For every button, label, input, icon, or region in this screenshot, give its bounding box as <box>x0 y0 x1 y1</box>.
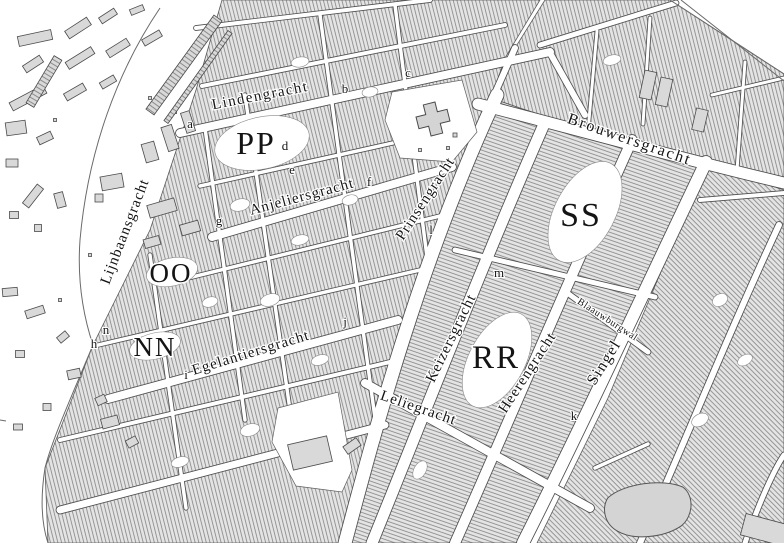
building <box>99 75 116 89</box>
building <box>99 8 118 24</box>
building <box>419 149 422 152</box>
building <box>149 97 152 100</box>
index-letter-m: m <box>494 265 504 280</box>
block-letter-nn: NN <box>134 332 177 362</box>
building <box>89 254 92 257</box>
building <box>141 141 159 163</box>
index-letter-i: i <box>184 367 188 382</box>
building <box>161 124 179 151</box>
building <box>22 184 43 208</box>
building <box>453 133 457 137</box>
building <box>35 225 42 232</box>
index-letter-g: g <box>216 213 223 228</box>
block-letter-oo: OO <box>150 258 193 288</box>
index-letter-f: f <box>367 174 372 189</box>
building <box>59 299 62 302</box>
building <box>16 351 25 358</box>
building <box>25 305 46 318</box>
building <box>100 173 124 191</box>
index-letter-j: j <box>342 314 347 329</box>
building <box>22 55 43 73</box>
map-canvas: LijnbaansgrachtLindengrachtAnjeliersgrac… <box>0 0 784 543</box>
building <box>65 17 92 39</box>
index-letter-c: c <box>405 65 411 80</box>
block-letter-ss: SS <box>560 197 602 234</box>
building <box>54 119 57 122</box>
building <box>57 331 70 343</box>
building <box>54 192 67 209</box>
building <box>14 424 23 430</box>
building <box>95 194 103 202</box>
index-letter-b: b <box>342 81 349 96</box>
index-letter-k: k <box>571 408 578 423</box>
building <box>2 287 18 296</box>
index-letter-l: l <box>429 222 433 237</box>
index-letter-h: h <box>91 336 98 351</box>
index-letter-d: d <box>282 138 289 153</box>
building <box>10 212 19 219</box>
building <box>447 147 450 150</box>
building <box>106 38 131 58</box>
index-letter-n: n <box>103 322 110 337</box>
block-letter-rr: RR <box>472 340 520 376</box>
building <box>65 47 95 70</box>
building <box>17 30 52 47</box>
building <box>6 159 18 167</box>
building <box>5 120 27 136</box>
historical-map: LijnbaansgrachtLindengrachtAnjeliersgrac… <box>0 0 784 543</box>
block-letter-pp: PP <box>236 125 276 161</box>
building <box>43 404 51 411</box>
building <box>129 5 144 16</box>
building <box>37 131 54 145</box>
index-letter-e: e <box>289 162 295 177</box>
boundary-edge-tick <box>0 420 6 421</box>
index-letter-a: a <box>187 116 193 131</box>
building <box>63 83 86 101</box>
